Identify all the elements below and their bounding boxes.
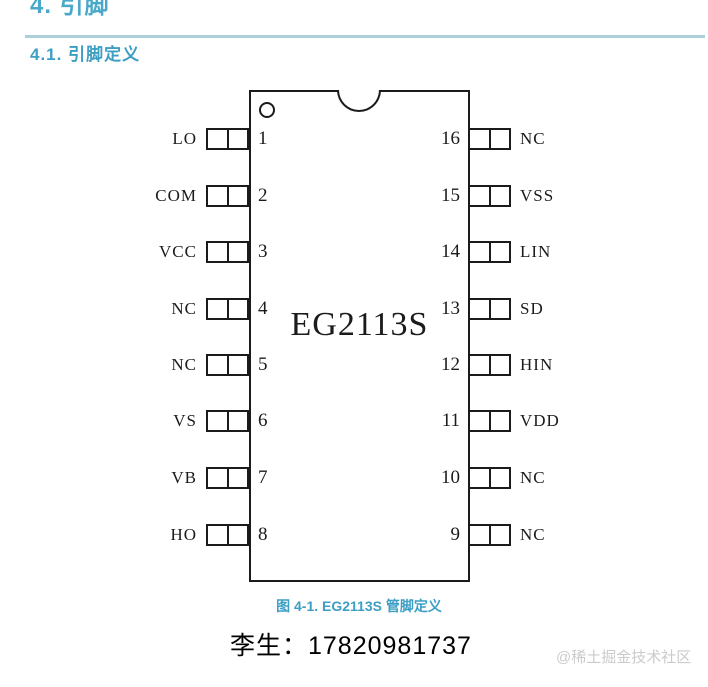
pin-box xyxy=(468,128,511,150)
pin-box xyxy=(468,354,511,376)
pin-number: 15 xyxy=(400,185,460,207)
pin-number: 10 xyxy=(400,467,460,489)
pin-label: NC xyxy=(520,128,640,150)
pin-row: LIN14 xyxy=(0,241,708,263)
figure-caption: 图 4-1. EG2113S 管脚定义 xyxy=(209,597,509,615)
pin-box xyxy=(206,241,249,263)
pin-label: VDD xyxy=(520,410,640,432)
pin-row: NC9 xyxy=(0,524,708,546)
pin-row: HIN12 xyxy=(0,354,708,376)
pin-number: 16 xyxy=(400,128,460,150)
pin-label: NC xyxy=(520,524,640,546)
pin-box xyxy=(206,467,249,489)
watermark: @稀土掘金技术社区 xyxy=(556,649,691,667)
contact-text: 李生：17820981737 xyxy=(230,630,472,662)
pin-box xyxy=(468,410,511,432)
pin-row: NC10 xyxy=(0,467,708,489)
pin-box xyxy=(206,185,249,207)
pin-row: VDD11 xyxy=(0,410,708,432)
pin-label: VSS xyxy=(520,185,640,207)
pin-number: 11 xyxy=(400,410,460,432)
pin-box xyxy=(468,467,511,489)
pin-number: 14 xyxy=(400,241,460,263)
pin1-indicator-dot xyxy=(259,102,275,118)
pin-label: HIN xyxy=(520,354,640,376)
pin-label: LIN xyxy=(520,241,640,263)
subsection-title: 4.1. 引脚定义 xyxy=(30,44,140,66)
pin-box xyxy=(206,524,249,546)
pin-box xyxy=(206,354,249,376)
pin-box xyxy=(468,524,511,546)
pin-box xyxy=(206,410,249,432)
pin-box xyxy=(468,298,511,320)
pin-row: VSS15 xyxy=(0,185,708,207)
pin-number: 12 xyxy=(400,354,460,376)
pin-box xyxy=(468,241,511,263)
pin-number: 9 xyxy=(400,524,460,546)
chip-part-number: EG2113S xyxy=(249,308,470,342)
pin-box xyxy=(206,298,249,320)
pin-box xyxy=(468,185,511,207)
pin-label: NC xyxy=(520,467,640,489)
pin-row: NC16 xyxy=(0,128,708,150)
section-title: 4. 引脚 xyxy=(30,0,110,19)
pin-box xyxy=(206,128,249,150)
pin-label: SD xyxy=(520,298,640,320)
datasheet-page: 4. 引脚 4.1. 引脚定义 EG2113S LO1COM2VCC3NC4NC… xyxy=(0,0,708,687)
section-divider xyxy=(25,35,705,38)
